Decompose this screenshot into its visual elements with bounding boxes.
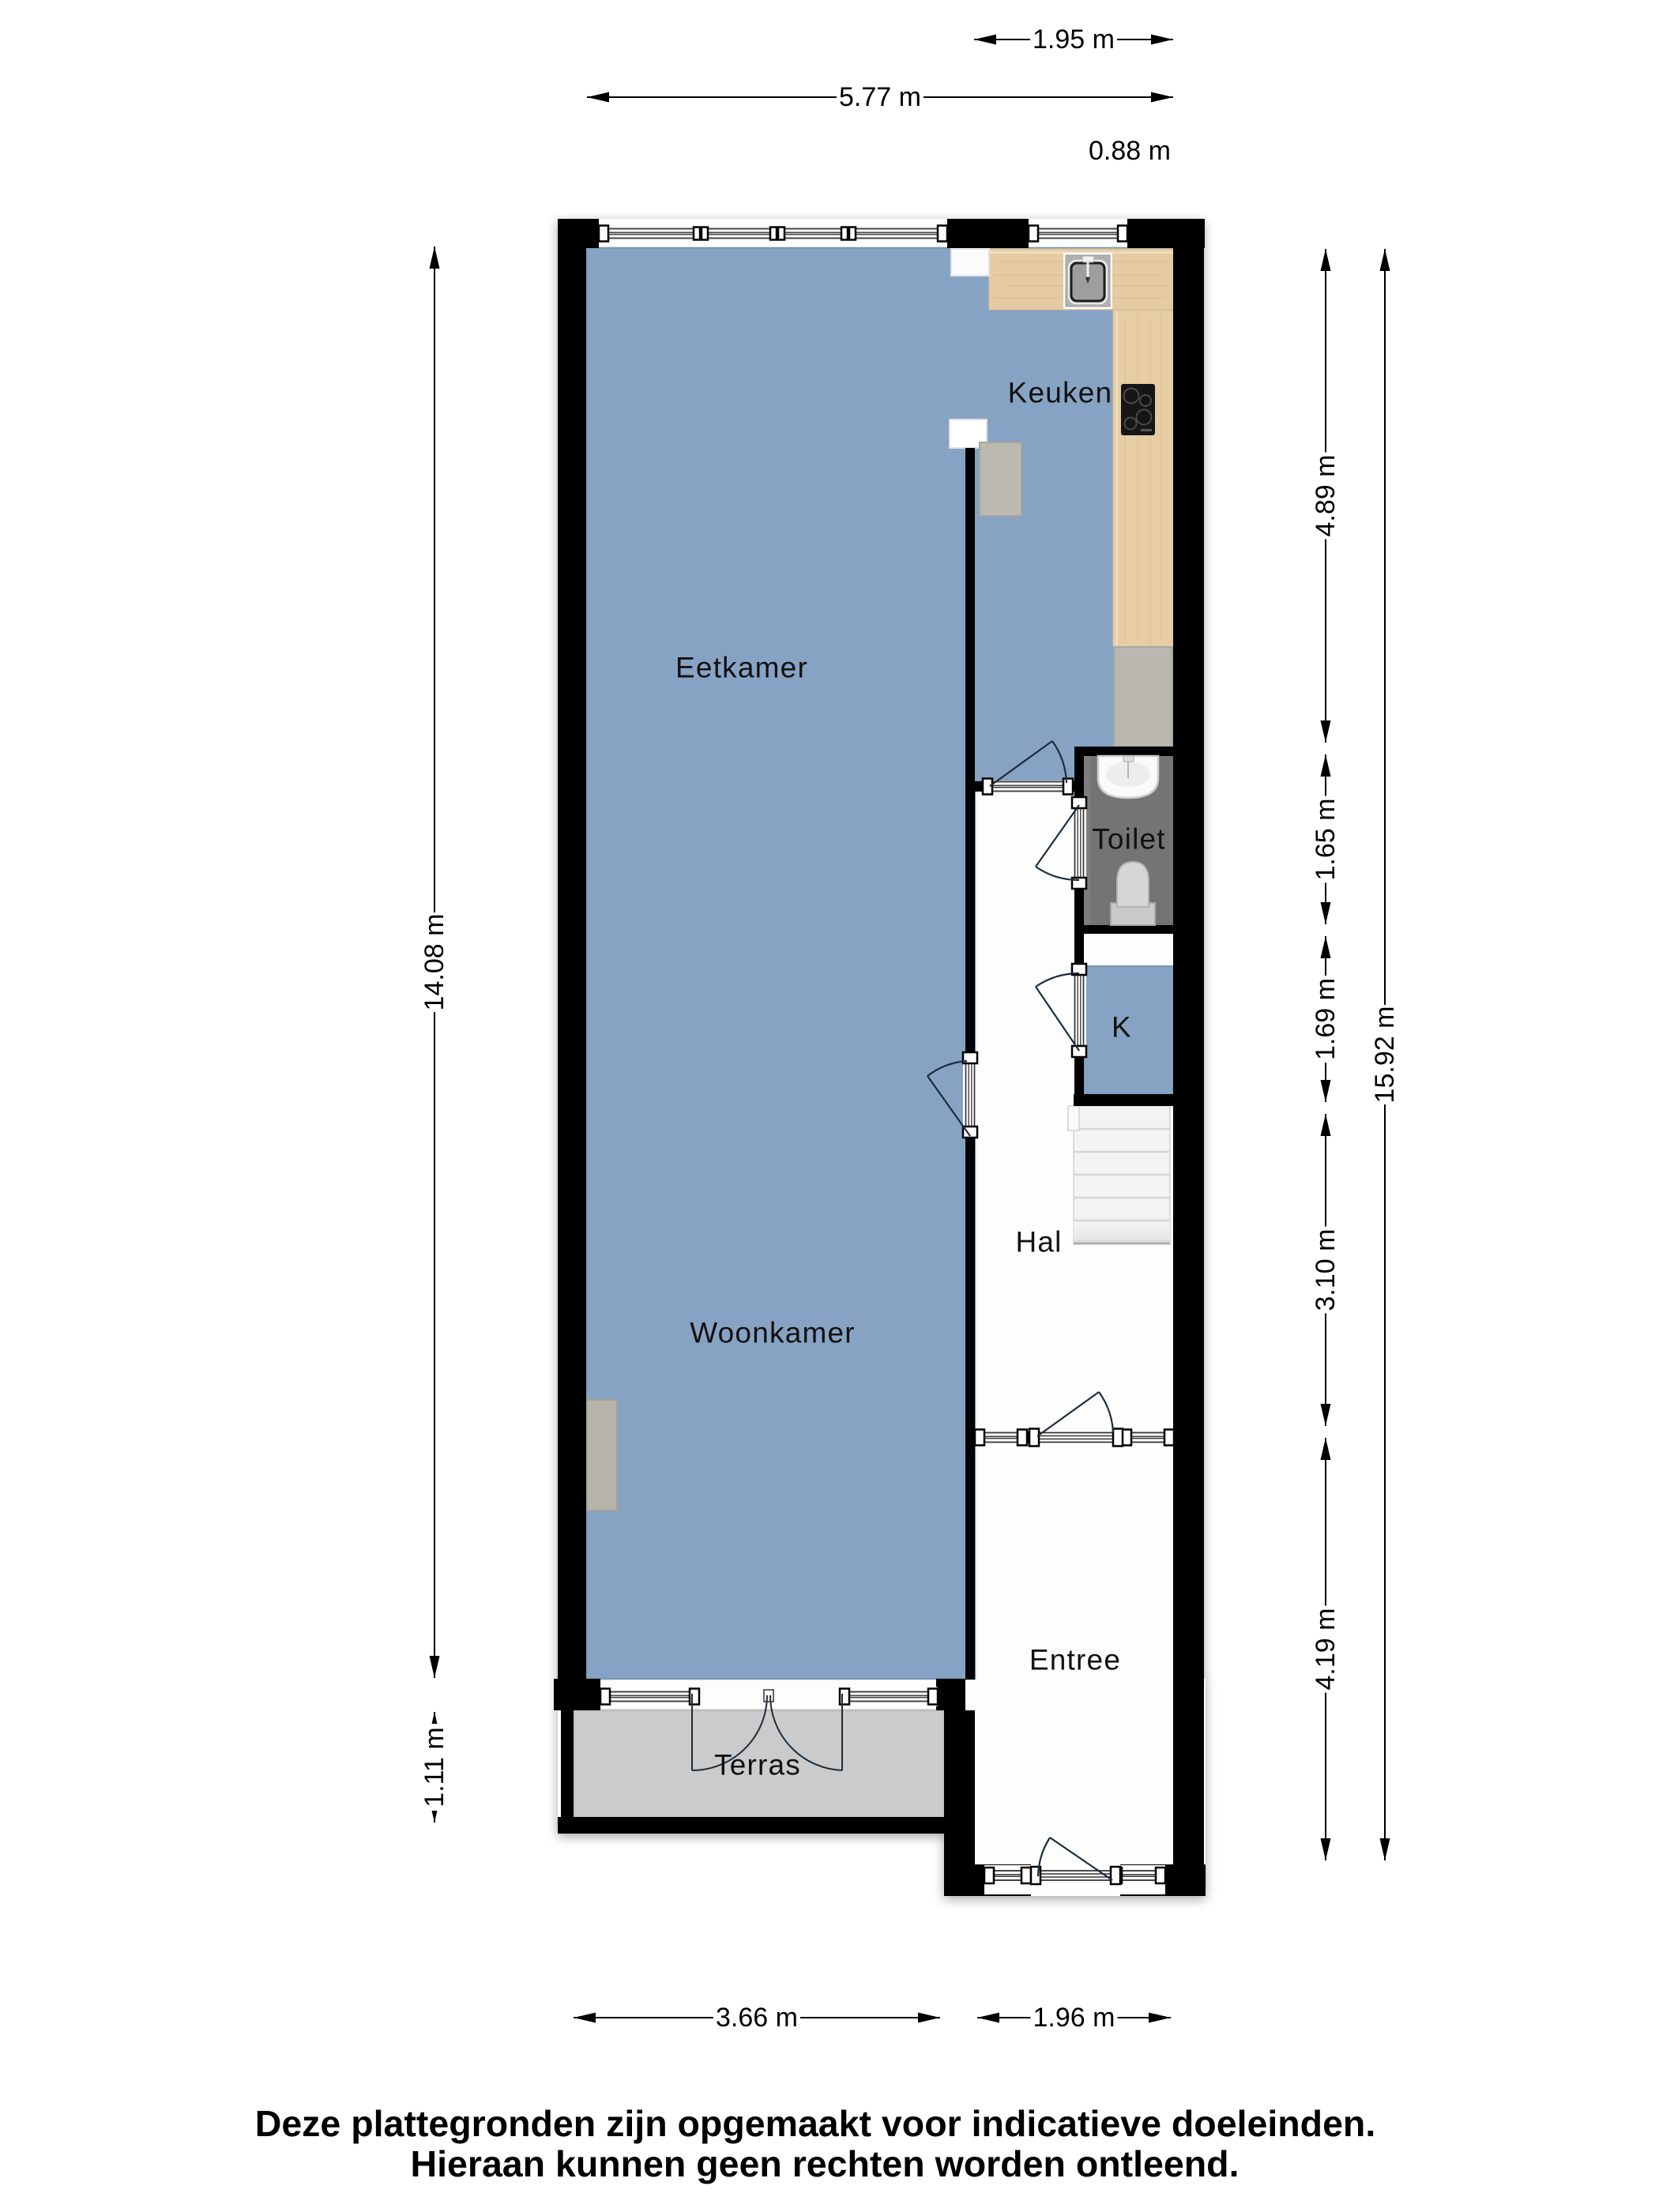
svg-text:1.96 m: 1.96 m <box>1033 2003 1115 2033</box>
svg-text:0.88 m: 0.88 m <box>1089 136 1171 166</box>
svg-text:Eetkamer: Eetkamer <box>675 652 808 684</box>
svg-text:3.66 m: 3.66 m <box>716 2003 798 2033</box>
svg-text:Woonkamer: Woonkamer <box>690 1317 856 1349</box>
svg-text:5.77 m: 5.77 m <box>839 82 921 112</box>
svg-text:15.92 m: 15.92 m <box>1370 1006 1400 1104</box>
svg-text:3.10 m: 3.10 m <box>1311 1229 1341 1311</box>
svg-text:Hal: Hal <box>1015 1226 1062 1258</box>
svg-text:K: K <box>1112 1011 1132 1044</box>
svg-text:14.08 m: 14.08 m <box>419 914 450 1011</box>
svg-text:Deze plattegronden zijn opgema: Deze plattegronden zijn opgemaakt voor i… <box>255 2103 1376 2144</box>
svg-text:Entree: Entree <box>1029 1644 1121 1676</box>
svg-text:1.69 m: 1.69 m <box>1311 978 1341 1060</box>
svg-text:1.65 m: 1.65 m <box>1311 799 1341 881</box>
svg-text:Keuken: Keuken <box>1008 377 1113 409</box>
svg-text:1.11 m: 1.11 m <box>419 1727 450 1807</box>
svg-text:1.95 m: 1.95 m <box>1033 24 1115 55</box>
svg-text:Toilet: Toilet <box>1092 823 1166 856</box>
svg-text:Hieraan kunnen geen rechten wo: Hieraan kunnen geen rechten worden ontle… <box>410 2143 1239 2184</box>
svg-text:4.19 m: 4.19 m <box>1311 1608 1341 1691</box>
svg-text:4.89 m: 4.89 m <box>1311 455 1341 537</box>
svg-text:Terras: Terras <box>714 1749 801 1781</box>
